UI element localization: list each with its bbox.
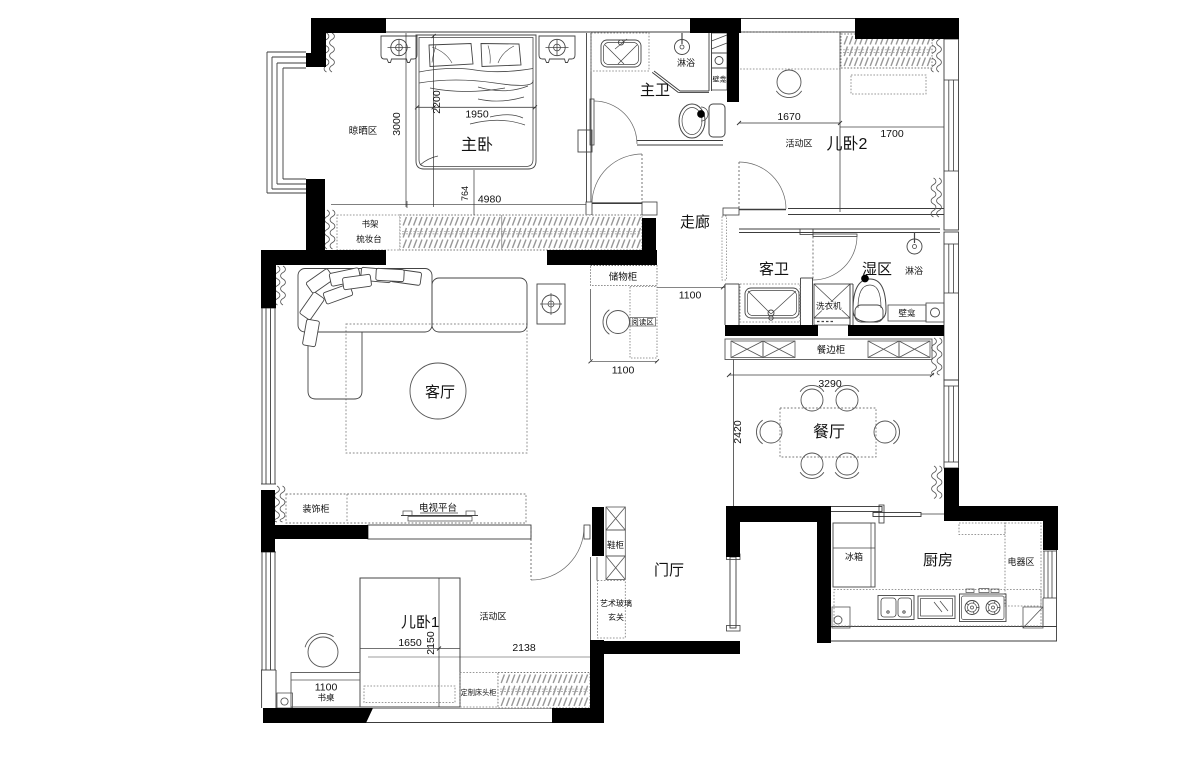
svg-text:书桌: 书桌	[317, 693, 335, 703]
svg-text:定制床头柜: 定制床头柜	[461, 688, 497, 697]
svg-text:1100: 1100	[679, 290, 702, 302]
svg-text:装饰柜: 装饰柜	[302, 503, 329, 514]
svg-text:活动区: 活动区	[785, 138, 812, 149]
svg-text:儿卧2: 儿卧2	[827, 135, 868, 153]
svg-text:艺术玻璃: 艺术玻璃	[600, 598, 632, 608]
svg-text:客厅: 客厅	[425, 384, 455, 401]
svg-text:梳妆台: 梳妆台	[356, 234, 382, 244]
svg-text:晾晒区: 晾晒区	[349, 125, 378, 137]
svg-text:餐厅: 餐厅	[813, 423, 845, 441]
svg-text:湿区: 湿区	[862, 261, 892, 278]
svg-text:储物柜: 储物柜	[609, 271, 638, 283]
svg-text:鞋柜: 鞋柜	[607, 540, 625, 550]
svg-text:厨房: 厨房	[923, 552, 953, 569]
svg-text:1950: 1950	[465, 109, 489, 121]
svg-text:餐边柜: 餐边柜	[817, 344, 846, 356]
svg-text:儿卧1: 儿卧1	[401, 614, 439, 631]
svg-text:764: 764	[460, 186, 470, 201]
svg-text:主卧: 主卧	[461, 136, 493, 154]
svg-text:走廊: 走廊	[680, 214, 710, 231]
svg-text:壁龛: 壁龛	[898, 308, 916, 318]
svg-text:冰箱: 冰箱	[845, 551, 863, 562]
svg-text:客卫: 客卫	[759, 261, 789, 278]
svg-text:洗衣机: 洗衣机	[816, 301, 842, 311]
svg-text:阅读区: 阅读区	[631, 316, 654, 326]
svg-text:3000: 3000	[391, 112, 403, 136]
svg-text:1670: 1670	[777, 111, 801, 123]
svg-text:活动区: 活动区	[479, 611, 506, 622]
svg-text:2200: 2200	[431, 90, 443, 114]
svg-text:壁龛: 壁龛	[713, 75, 727, 84]
svg-text:2420: 2420	[732, 420, 744, 444]
svg-text:淋浴: 淋浴	[905, 265, 923, 276]
svg-text:4980: 4980	[478, 194, 502, 206]
svg-text:1700: 1700	[880, 128, 904, 140]
svg-text:1100: 1100	[612, 365, 635, 377]
svg-text:电视平台: 电视平台	[419, 502, 457, 514]
svg-text:淋浴: 淋浴	[677, 57, 695, 68]
svg-text:书架: 书架	[361, 219, 379, 229]
svg-text:2150: 2150	[425, 631, 437, 655]
svg-text:主卫: 主卫	[640, 82, 670, 99]
svg-text:电器区: 电器区	[1007, 556, 1034, 567]
svg-text:玄关: 玄关	[608, 612, 624, 622]
svg-text:2138: 2138	[512, 642, 536, 654]
svg-text:1650: 1650	[398, 637, 422, 649]
svg-text:门厅: 门厅	[654, 562, 684, 579]
